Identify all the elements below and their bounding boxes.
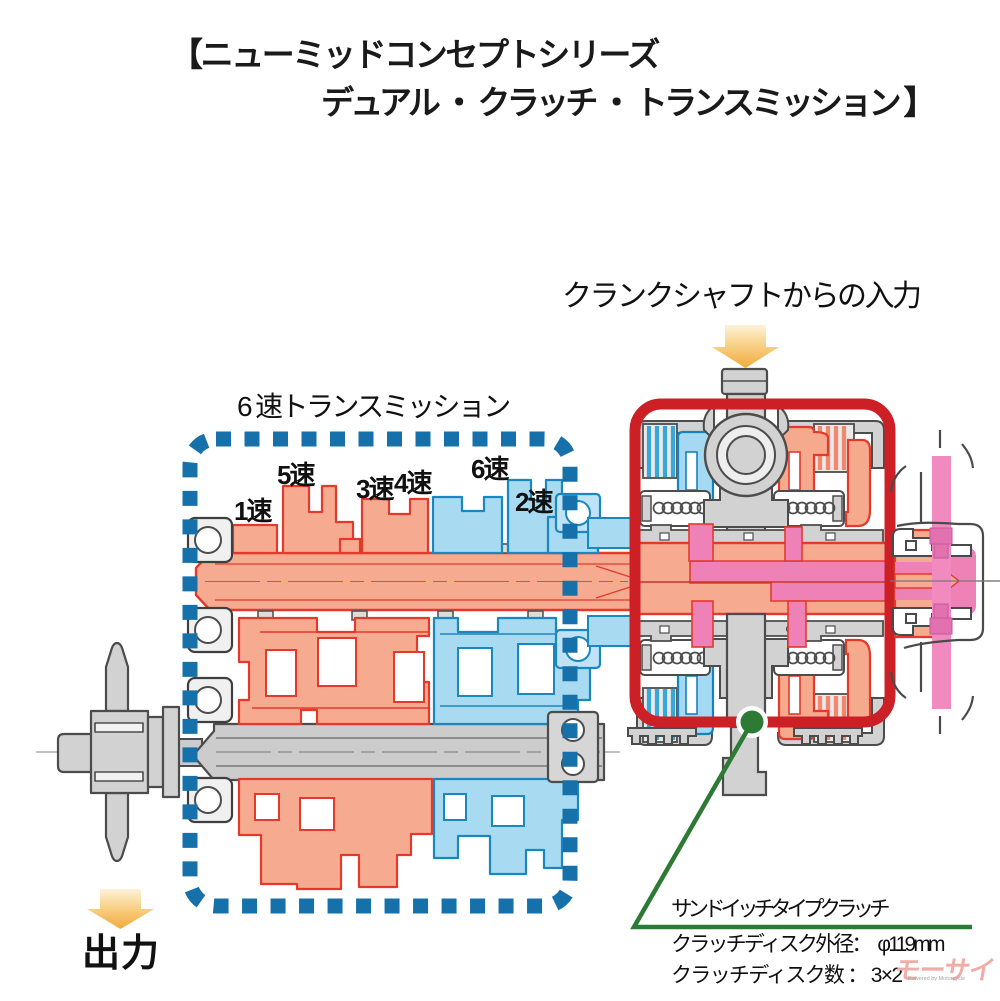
- svg-text:Powered by Motorcycle: Powered by Motorcycle: [908, 976, 965, 982]
- svg-text:デュアル ・ クラッチ ・ トランスミッション 】: デュアル ・ クラッチ ・ トランスミッション 】: [321, 84, 933, 121]
- svg-text:2速: 2速: [515, 487, 553, 517]
- svg-text:出力: 出力: [82, 933, 160, 975]
- svg-text:3速: 3速: [356, 474, 394, 504]
- svg-text:クラッチディスク外径： φ119mm: クラッチディスク外径： φ119mm: [671, 933, 945, 956]
- svg-text:4速: 4速: [394, 468, 432, 498]
- svg-text:5速: 5速: [277, 460, 315, 490]
- svg-text:6速: 6速: [471, 454, 509, 484]
- svg-text:クラッチディスク数 ： 3×2: クラッチディスク数 ： 3×2: [671, 964, 902, 987]
- svg-text:6 速トランスミッション: 6 速トランスミッション: [237, 391, 509, 422]
- svg-text:サンドイッチタイプクラッチ: サンドイッチタイプクラッチ: [671, 897, 889, 921]
- svg-text:1速: 1速: [234, 496, 272, 526]
- svg-text:【ニューミッドコンセプトシリーズ: 【ニューミッドコンセプトシリーズ: [170, 36, 660, 73]
- svg-text:クランクシャフトからの入力: クランクシャフトからの入力: [562, 280, 920, 313]
